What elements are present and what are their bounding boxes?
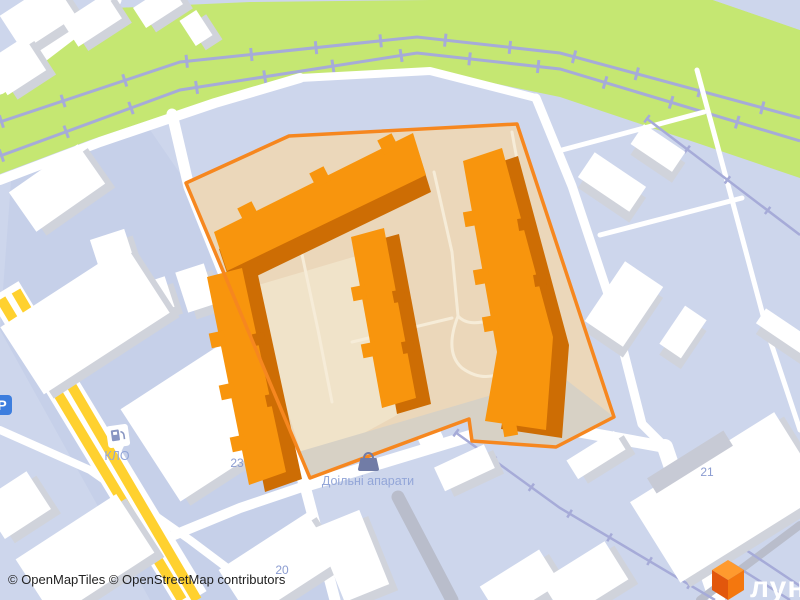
brand-logo-text: лун: [750, 571, 800, 600]
parking-label: P: [0, 397, 7, 413]
map-screenshot: P КЛО Доільні апарати 23 20 21 © OpenMap…: [0, 0, 800, 600]
house-number-23: 23: [230, 456, 244, 470]
gas-station-marker[interactable]: КЛО: [104, 424, 131, 463]
gas-station-label: КЛО: [104, 449, 129, 463]
map-attribution[interactable]: © OpenMapTiles © OpenStreetMap contribut…: [8, 572, 286, 587]
map-canvas[interactable]: P КЛО Доільні апарати 23 20 21 © OpenMap…: [0, 0, 800, 600]
parking-marker[interactable]: P: [0, 395, 12, 415]
house-number-21: 21: [700, 465, 714, 479]
shop-label: Доільні апарати: [322, 474, 414, 488]
